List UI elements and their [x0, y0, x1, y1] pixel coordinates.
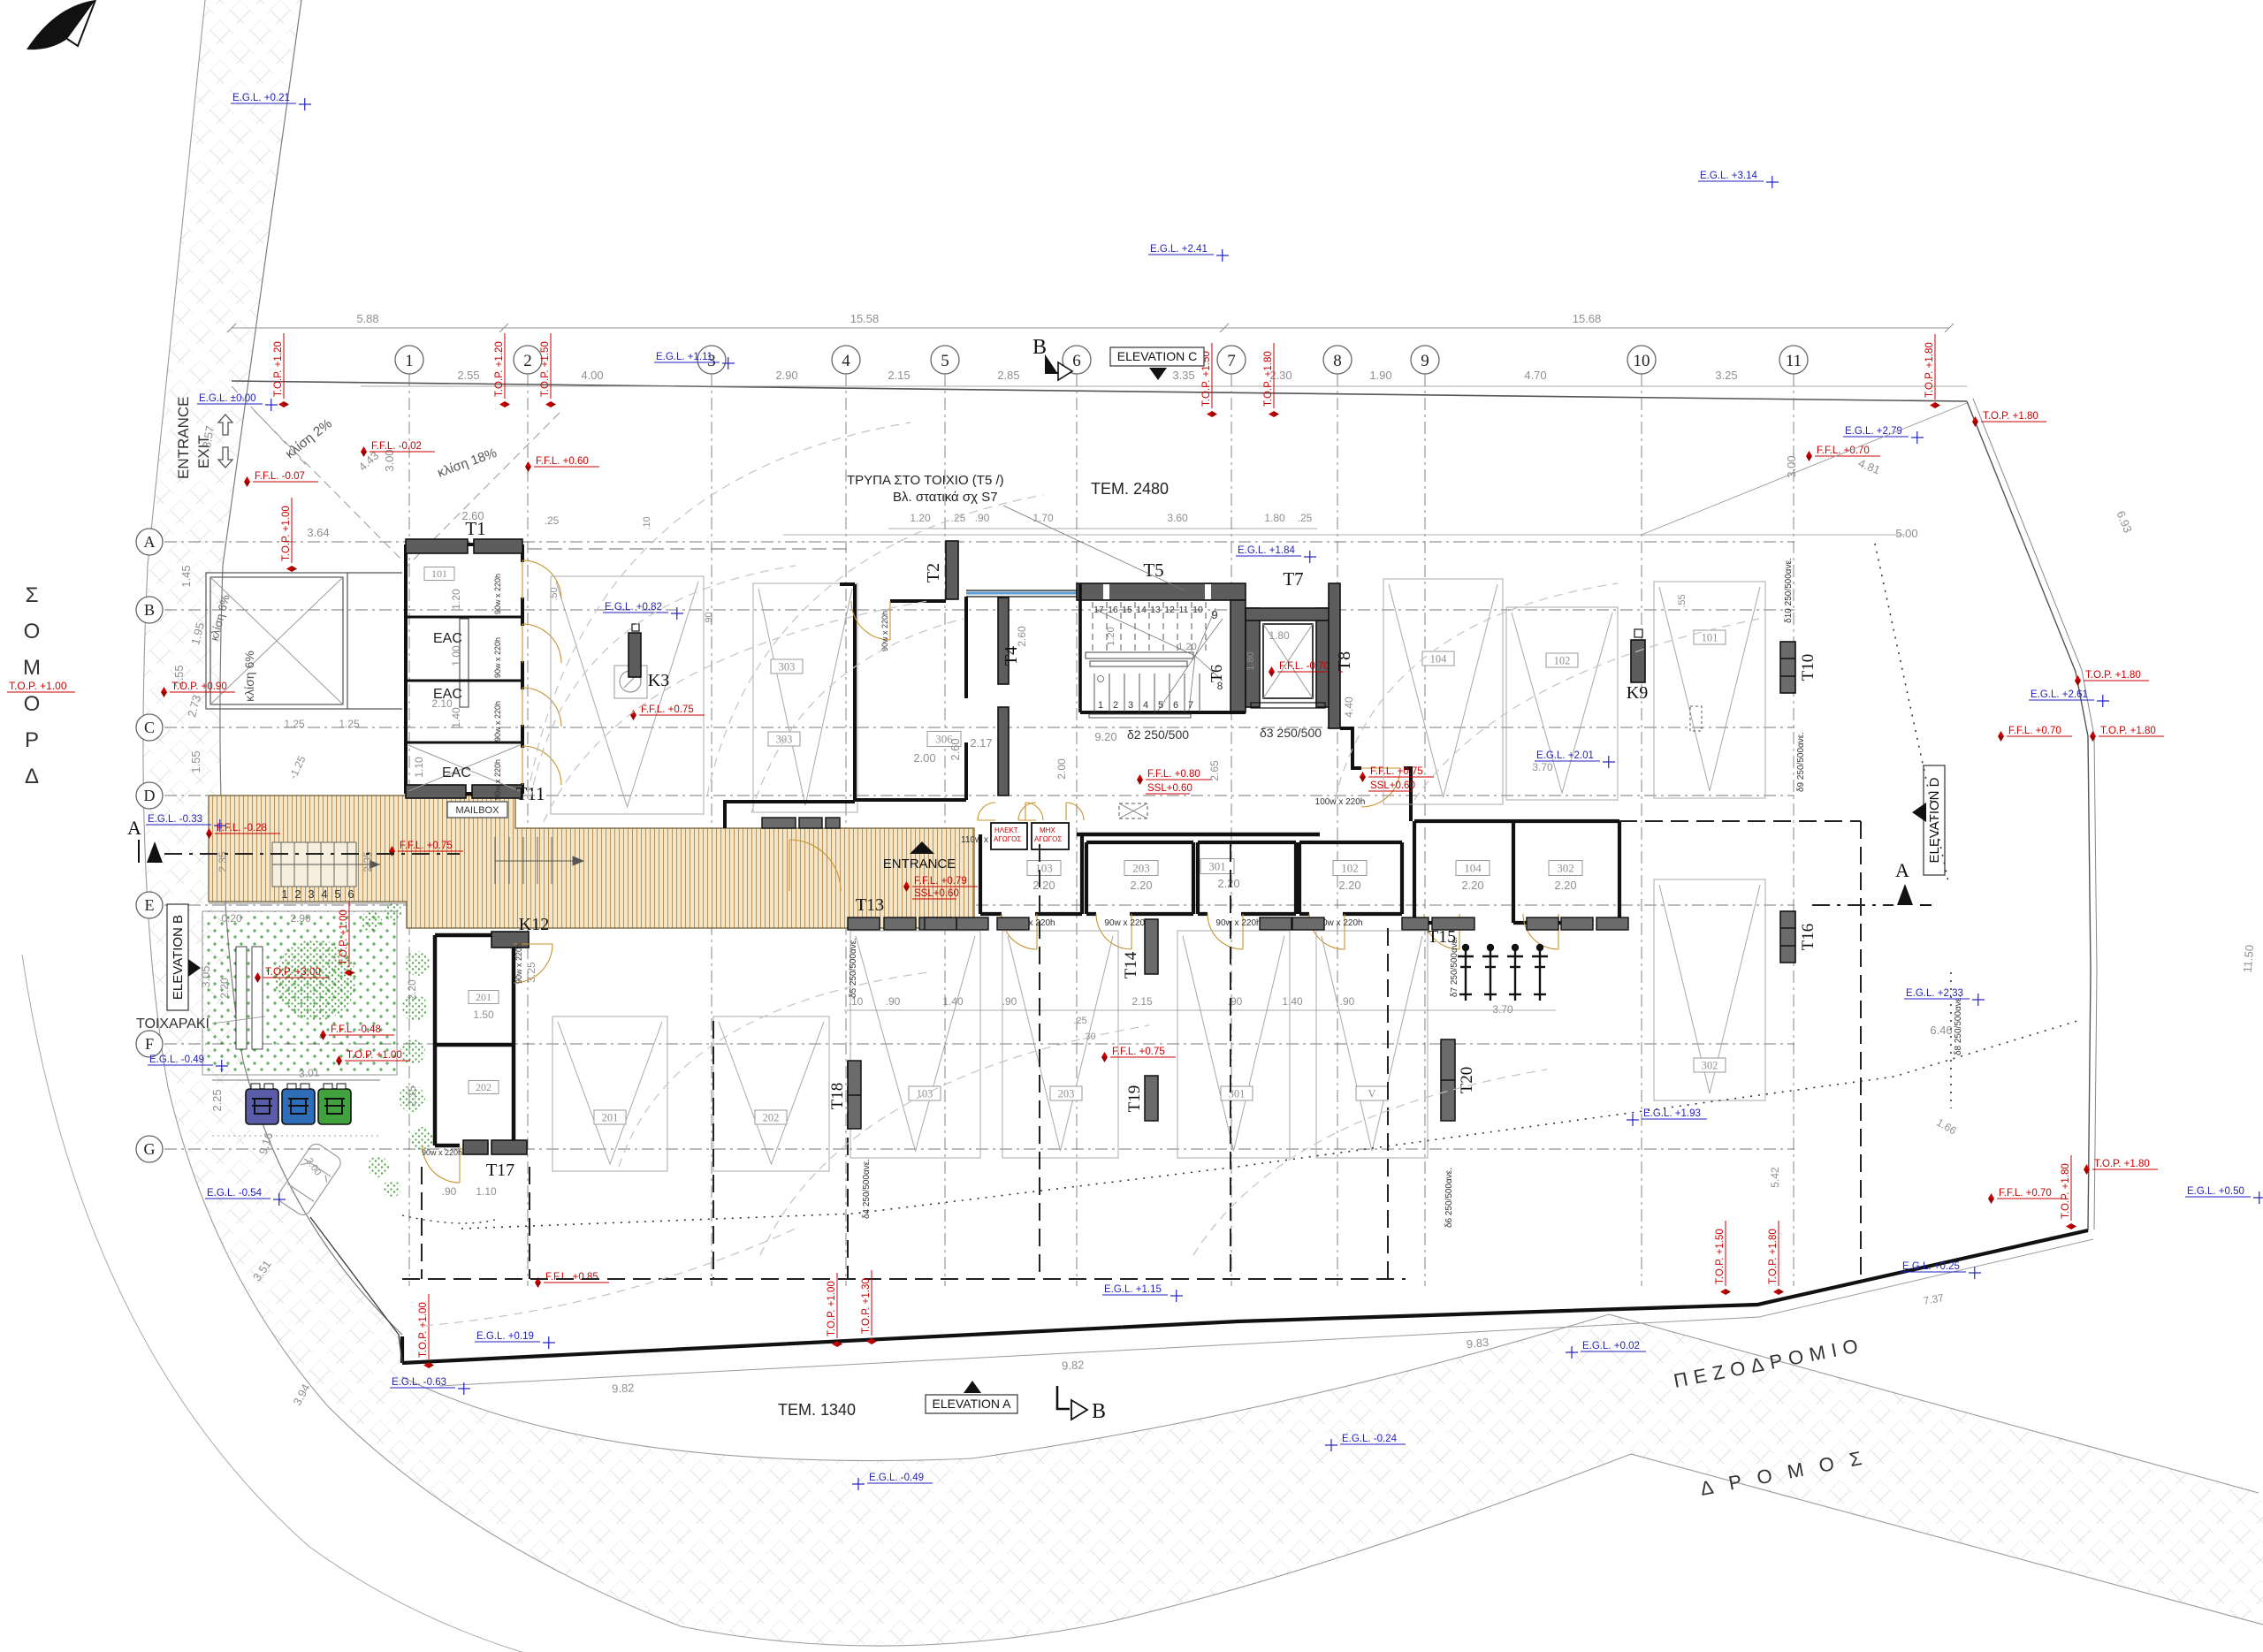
svg-text:Ο: Ο — [24, 692, 41, 716]
svg-text:1.90: 1.90 — [1369, 369, 1391, 382]
svg-text:101: 101 — [1702, 631, 1718, 643]
svg-text:T.O.P. +1.80: T.O.P. +1.80 — [1924, 342, 1935, 398]
svg-text:κλίση 6%: κλίση 6% — [242, 651, 256, 702]
svg-text:1.00: 1.00 — [450, 645, 462, 666]
svg-text:5.42: 5.42 — [1769, 1167, 1781, 1188]
svg-text:T.O.P. +1.80: T.O.P. +1.80 — [1983, 411, 2038, 422]
svg-text:2.15: 2.15 — [888, 369, 910, 382]
svg-text:ΑΓΩΓΟΣ: ΑΓΩΓΟΣ — [1034, 835, 1062, 843]
svg-text:.90: .90 — [704, 612, 714, 625]
svg-text:EAC: EAC — [433, 631, 462, 646]
svg-text:T.O.P. +3.00: T.O.P. +3.00 — [265, 967, 321, 978]
svg-text:2.60: 2.60 — [949, 738, 962, 760]
svg-text:δ8 250/500ανε.: δ8 250/500ανε. — [1954, 995, 1963, 1055]
svg-text:103: 103 — [1035, 861, 1053, 874]
svg-text:Βλ. στατικά σχ S7: Βλ. στατικά σχ S7 — [893, 490, 998, 505]
svg-text:E.G.L. -0.63: E.G.L. -0.63 — [392, 1377, 446, 1388]
svg-text:A: A — [1895, 859, 1909, 881]
svg-text:3.60: 3.60 — [1167, 512, 1188, 524]
svg-text:K3: K3 — [648, 671, 669, 690]
svg-text:E.G.L. +0.19: E.G.L. +0.19 — [476, 1331, 534, 1342]
svg-text:Δ: Δ — [25, 765, 39, 788]
svg-text:.25: .25 — [545, 514, 560, 527]
svg-text:2.20: 2.20 — [406, 979, 418, 1001]
svg-text:1.20: 1.20 — [1177, 642, 1196, 652]
svg-text:T1: T1 — [465, 518, 485, 539]
svg-text:T.O.P. +1.00: T.O.P. +1.00 — [9, 680, 67, 692]
svg-text:1.10: 1.10 — [476, 1185, 497, 1198]
svg-text:90w x 220h: 90w x 220h — [1215, 918, 1261, 928]
svg-text:T.O.P. +1.30: T.O.P. +1.30 — [861, 1278, 872, 1334]
svg-text:102: 102 — [1554, 654, 1571, 666]
svg-text:.25: .25 — [1298, 512, 1313, 524]
svg-text:6.46: 6.46 — [1930, 1024, 1952, 1037]
svg-text:303: 303 — [779, 660, 796, 673]
svg-text:11: 11 — [1179, 605, 1189, 615]
svg-text:1.45: 1.45 — [179, 565, 193, 587]
svg-text:T10: T10 — [1799, 654, 1817, 681]
svg-text:1: 1 — [405, 352, 414, 370]
svg-text:100w x 220h: 100w x 220h — [1315, 797, 1366, 807]
svg-text:2: 2 — [294, 887, 301, 901]
svg-text:ΤΕΜ. 2480: ΤΕΜ. 2480 — [1091, 480, 1169, 498]
svg-text:.50: .50 — [549, 587, 560, 600]
svg-text:T.O.P. +1.80: T.O.P. +1.80 — [2094, 1159, 2150, 1169]
svg-text:T8: T8 — [1335, 651, 1354, 671]
svg-text:ELEVATION D: ELEVATION D — [1927, 777, 1942, 863]
svg-text:E.G.L. +1.93: E.G.L. +1.93 — [1643, 1108, 1701, 1119]
svg-text:.90: .90 — [1002, 995, 1017, 1008]
svg-text:T.O.P. +1.00: T.O.P. +1.00 — [281, 506, 292, 561]
svg-text:5.00: 5.00 — [1895, 527, 1917, 540]
svg-text:2.20: 2.20 — [1461, 879, 1483, 892]
svg-text:1.20: 1.20 — [450, 589, 462, 610]
svg-text:2.20: 2.20 — [218, 978, 231, 999]
svg-text:4.70: 4.70 — [1524, 369, 1546, 382]
svg-text:Σ: Σ — [26, 583, 39, 607]
svg-text:4: 4 — [842, 352, 850, 370]
svg-text:9: 9 — [1211, 608, 1217, 621]
svg-text:δ2 250/500: δ2 250/500 — [1127, 727, 1189, 742]
svg-text:2.90: 2.90 — [290, 912, 311, 925]
svg-text:9.82: 9.82 — [612, 1381, 635, 1395]
svg-text:103: 103 — [917, 1087, 933, 1100]
svg-text:T13: T13 — [856, 895, 884, 915]
svg-text:2.15: 2.15 — [1131, 995, 1153, 1008]
svg-text:3.01: 3.01 — [299, 1066, 321, 1080]
svg-text:1.70: 1.70 — [1032, 512, 1054, 524]
svg-text:15.68: 15.68 — [1573, 312, 1602, 325]
svg-text:202: 202 — [476, 1081, 491, 1093]
svg-text:T19: T19 — [1125, 1085, 1144, 1113]
svg-text:203: 203 — [1058, 1087, 1075, 1100]
svg-text:E.G.L. -0.24: E.G.L. -0.24 — [1342, 1434, 1398, 1444]
svg-text:E.G.L. +2.33: E.G.L. +2.33 — [1906, 988, 1963, 999]
svg-text:2.65: 2.65 — [1208, 760, 1221, 781]
svg-text:4: 4 — [321, 887, 327, 901]
svg-text:F.F.L. +0.75: F.F.L. +0.75 — [1112, 1047, 1165, 1057]
svg-text:90w x 220h: 90w x 220h — [493, 637, 502, 678]
svg-text:ΑΓΩΓΟΣ: ΑΓΩΓΟΣ — [994, 835, 1021, 843]
svg-text:A: A — [127, 817, 141, 839]
svg-text:90w x 220h: 90w x 220h — [880, 611, 889, 651]
svg-text:.10: .10 — [642, 516, 652, 529]
svg-text:E: E — [145, 896, 155, 914]
svg-text:15.58: 15.58 — [850, 312, 880, 325]
svg-text:T11: T11 — [515, 783, 545, 804]
svg-text:δ9 250/500ανε.: δ9 250/500ανε. — [1796, 732, 1806, 792]
svg-text:0.20: 0.20 — [221, 912, 242, 925]
svg-text:T.O.P. +1.00: T.O.P. +1.00 — [418, 1302, 429, 1358]
svg-text:E.G.L. +1.84: E.G.L. +1.84 — [1238, 545, 1295, 556]
svg-text:90w x 220h: 90w x 220h — [514, 943, 523, 984]
svg-text:9: 9 — [1421, 352, 1429, 370]
svg-text:δ5 250/500ανε.: δ5 250/500ανε. — [849, 938, 858, 998]
svg-text:T.O.P. +1.50: T.O.P. +1.50 — [1715, 1229, 1726, 1284]
svg-text:2.25: 2.25 — [210, 1089, 224, 1111]
svg-text:5: 5 — [334, 887, 340, 901]
svg-text:E.G.L. -0.49: E.G.L. -0.49 — [149, 1054, 204, 1065]
svg-text:ΗΛΕΚΤ.: ΗΛΕΚΤ. — [994, 826, 1019, 834]
svg-text:104: 104 — [1464, 861, 1482, 874]
svg-text:EXIT: EXIT — [195, 435, 212, 468]
svg-text:5: 5 — [1158, 700, 1163, 711]
svg-text:E.G.L. -0.54: E.G.L. -0.54 — [207, 1188, 263, 1199]
svg-text:ΤΡΥΠΑ ΣΤΟ ΤΟΙΧΙΟ (Τ5 /): ΤΡΥΠΑ ΣΤΟ ΤΟΙΧΙΟ (Τ5 /) — [847, 473, 1004, 488]
svg-text:T.O.P. +1.80: T.O.P. +1.80 — [2061, 1163, 2071, 1219]
svg-text:.25: .25 — [1073, 1016, 1086, 1026]
svg-text:ΜΗΧ: ΜΗΧ — [1040, 826, 1055, 834]
svg-text:E.G.L. -0.33: E.G.L. -0.33 — [148, 814, 202, 825]
svg-text:2: 2 — [523, 352, 532, 370]
svg-text:12: 12 — [1164, 605, 1175, 615]
svg-text:MAILBOX: MAILBOX — [456, 805, 500, 816]
svg-text:E.G.L. ±0.00: E.G.L. ±0.00 — [199, 393, 256, 404]
svg-text:T.O.P. +1.50: T.O.P. +1.50 — [540, 341, 551, 397]
svg-text:ENTRANCE: ENTRANCE — [883, 856, 956, 872]
svg-text:Ο: Ο — [24, 620, 41, 643]
svg-text:1: 1 — [281, 887, 287, 901]
svg-text:V: V — [1368, 1087, 1375, 1100]
svg-text:1.40: 1.40 — [450, 707, 462, 728]
svg-text:1.80: 1.80 — [1264, 512, 1285, 524]
svg-text:90w x 220h: 90w x 220h — [422, 1148, 462, 1157]
svg-text:3.25: 3.25 — [1715, 369, 1737, 382]
svg-text:ELEVATION B: ELEVATION B — [171, 915, 186, 1000]
svg-text:2.90: 2.90 — [775, 369, 797, 382]
svg-text:F: F — [145, 1035, 154, 1053]
svg-text:3.70: 3.70 — [1492, 1003, 1513, 1016]
svg-text:F.F.L. +0.79: F.F.L. +0.79 — [914, 876, 967, 887]
svg-text:E.G.L. +1.15: E.G.L. +1.15 — [1104, 1284, 1162, 1295]
svg-text:T.O.P. +1.80: T.O.P. +1.80 — [2085, 670, 2141, 681]
svg-text:F.F.L. -0.02: F.F.L. -0.02 — [371, 441, 422, 452]
svg-text:1.25: 1.25 — [284, 718, 305, 730]
svg-text:5.88: 5.88 — [356, 312, 378, 325]
svg-text:1.40: 1.40 — [1282, 995, 1303, 1008]
svg-text:F.F.L. +0.75: F.F.L. +0.75 — [641, 704, 694, 715]
svg-text:11: 11 — [1786, 352, 1802, 370]
svg-text:202: 202 — [763, 1111, 780, 1123]
svg-text:.25: .25 — [951, 512, 966, 524]
svg-text:2.10: 2.10 — [431, 697, 453, 710]
svg-text:102: 102 — [1341, 861, 1359, 874]
svg-text:1.10: 1.10 — [413, 757, 425, 778]
svg-text:10: 10 — [1634, 352, 1650, 370]
svg-text:14: 14 — [1136, 605, 1147, 615]
svg-text:1.55: 1.55 — [189, 750, 202, 773]
svg-text:F.F.L. +0.60: F.F.L. +0.60 — [536, 456, 589, 467]
svg-text:.55: .55 — [1677, 594, 1688, 607]
svg-text:E.G.L. +0.82: E.G.L. +0.82 — [605, 602, 662, 613]
svg-text:F.F.L. -0.28: F.F.L. -0.28 — [217, 823, 267, 834]
svg-text:2.17: 2.17 — [970, 736, 992, 750]
svg-text:ΤΕΜ. 1340: ΤΕΜ. 1340 — [778, 1401, 856, 1419]
svg-text:13: 13 — [1150, 605, 1161, 615]
svg-text:E.G.L. -0.49: E.G.L. -0.49 — [869, 1473, 924, 1483]
svg-text:7: 7 — [1188, 700, 1193, 711]
svg-text:T6: T6 — [1208, 665, 1225, 682]
svg-text:T20: T20 — [1458, 1067, 1476, 1094]
svg-text:10: 10 — [1192, 605, 1203, 615]
svg-text:6: 6 — [1072, 352, 1081, 370]
svg-text:ENTRANCE: ENTRANCE — [175, 396, 192, 479]
svg-text:201: 201 — [602, 1111, 619, 1123]
svg-text:3.25: 3.25 — [525, 962, 537, 983]
svg-text:δ4 250/500ανε.: δ4 250/500ανε. — [862, 1159, 872, 1219]
svg-text:201: 201 — [476, 991, 491, 1003]
svg-text:2.20: 2.20 — [1217, 877, 1239, 890]
svg-text:E.G.L. +0.02: E.G.L. +0.02 — [1582, 1341, 1640, 1351]
svg-text:T.O.P. +1.00: T.O.P. +1.00 — [827, 1281, 837, 1336]
svg-text:F.F.L. +0.70: F.F.L. +0.70 — [1999, 1188, 2052, 1199]
svg-text:T.O.P. +1.80: T.O.P. +1.80 — [1768, 1229, 1779, 1284]
svg-text:F.F.L. +0.70: F.F.L. +0.70 — [1817, 445, 1870, 456]
svg-text:4: 4 — [1143, 700, 1148, 711]
svg-text:B: B — [1092, 1400, 1106, 1423]
svg-text:104: 104 — [1430, 652, 1448, 665]
svg-text:2.20: 2.20 — [1554, 879, 1576, 892]
svg-text:T16: T16 — [1799, 924, 1817, 951]
svg-text:16: 16 — [1108, 605, 1118, 615]
svg-text:90w x 220h: 90w x 220h — [493, 701, 502, 742]
svg-text:3.70: 3.70 — [1532, 761, 1553, 773]
svg-text:E.G.L. +0.21: E.G.L. +0.21 — [232, 93, 290, 103]
svg-text:F.F.L. -0.70: F.F.L. -0.70 — [1279, 661, 1330, 672]
svg-text:9.82: 9.82 — [1062, 1358, 1085, 1372]
svg-text:T.O.P. +1.20: T.O.P. +1.20 — [494, 341, 505, 397]
svg-text:2.55: 2.55 — [457, 369, 479, 382]
svg-text:1.80: 1.80 — [1246, 651, 1256, 670]
svg-text:90w x 220h: 90w x 220h — [493, 574, 502, 614]
svg-text:ELEVATION C: ELEVATION C — [1117, 349, 1198, 363]
svg-text:8: 8 — [1333, 352, 1342, 370]
svg-text:3: 3 — [1128, 700, 1133, 711]
svg-text:δ3 250/500: δ3 250/500 — [1260, 726, 1322, 740]
svg-text:T14: T14 — [1122, 951, 1140, 978]
svg-text:6: 6 — [1173, 700, 1178, 711]
svg-text:1.50: 1.50 — [473, 1009, 494, 1021]
svg-text:C: C — [144, 719, 155, 736]
svg-text:302: 302 — [1702, 1059, 1718, 1071]
svg-text:90w x 220h: 90w x 220h — [1104, 918, 1149, 928]
svg-text:T.O.P. +1.80: T.O.P. +1.80 — [2100, 726, 2156, 736]
svg-text:A: A — [144, 533, 156, 551]
svg-text:K12: K12 — [519, 915, 549, 934]
svg-text:D: D — [144, 787, 156, 804]
svg-text:203: 203 — [1132, 861, 1150, 874]
svg-text:9.83: 9.83 — [1466, 1336, 1490, 1351]
svg-text:1.20: 1.20 — [1106, 627, 1116, 645]
svg-text:2.85: 2.85 — [997, 369, 1019, 382]
svg-text:T.O.P. +1.20: T.O.P. +1.20 — [273, 341, 284, 397]
svg-text:.90: .90 — [886, 995, 901, 1008]
svg-text:SSL+0.60: SSL+0.60 — [1147, 783, 1192, 794]
svg-text:2.60: 2.60 — [1016, 626, 1028, 647]
svg-text:δ10 250/500ανε.: δ10 250/500ανε. — [1784, 558, 1794, 623]
svg-text:9.20: 9.20 — [1094, 730, 1116, 743]
svg-text:Μ: Μ — [23, 656, 41, 680]
svg-text:4.40: 4.40 — [1343, 697, 1355, 718]
svg-text:G: G — [144, 1140, 156, 1158]
svg-text:T18: T18 — [828, 1083, 847, 1110]
svg-text:SSL+0.60: SSL+0.60 — [914, 888, 959, 899]
svg-text:F.F.L. +0.85: F.F.L. +0.85 — [545, 1272, 598, 1283]
svg-text:F.F.L. +0.75: F.F.L. +0.75 — [1370, 766, 1423, 777]
svg-text:1.40: 1.40 — [942, 995, 964, 1008]
svg-text:F.F.L. +0.70: F.F.L. +0.70 — [2008, 726, 2061, 736]
svg-text:1.80: 1.80 — [1269, 629, 1290, 642]
svg-text:E.G.L. +2.61: E.G.L. +2.61 — [2031, 689, 2088, 700]
svg-text:B: B — [144, 601, 155, 619]
svg-text:1.25: 1.25 — [339, 718, 360, 730]
svg-text:F.F.L. +0.80: F.F.L. +0.80 — [1147, 769, 1200, 780]
svg-text:3.00: 3.00 — [1785, 455, 1798, 477]
svg-text:7: 7 — [1227, 352, 1236, 370]
svg-text:T17: T17 — [486, 1161, 514, 1180]
svg-text:E.G.L. +2.79: E.G.L. +2.79 — [1845, 426, 1902, 437]
svg-text:2.20: 2.20 — [1032, 879, 1055, 892]
svg-text:302: 302 — [1557, 861, 1574, 874]
svg-text:3.00: 3.00 — [383, 449, 396, 471]
svg-text:1: 1 — [1098, 700, 1103, 711]
svg-text:301: 301 — [1208, 859, 1226, 872]
svg-text:F.F.L. -0.48: F.F.L. -0.48 — [331, 1024, 381, 1035]
svg-text:E.G.L. +1.11: E.G.L. +1.11 — [656, 352, 712, 362]
svg-text:90w x 220h: 90w x 220h — [493, 759, 502, 800]
svg-text:15: 15 — [1122, 605, 1132, 615]
svg-text:101: 101 — [431, 567, 447, 580]
svg-text:2.00: 2.00 — [913, 751, 935, 765]
svg-text:E.G.L. +3.14: E.G.L. +3.14 — [1700, 171, 1757, 181]
svg-text:T7: T7 — [1283, 568, 1303, 590]
svg-text:T2: T2 — [924, 563, 943, 582]
svg-text:E.G.L. +2.01: E.G.L. +2.01 — [1536, 750, 1594, 761]
svg-text:B: B — [1032, 336, 1047, 359]
svg-text:3: 3 — [308, 887, 314, 901]
svg-text:δ7 250/500ανε.: δ7 250/500ανε. — [1450, 937, 1459, 997]
svg-text:4.00: 4.00 — [581, 369, 603, 382]
svg-text:2: 2 — [1113, 700, 1118, 711]
svg-text:SSL+0.60: SSL+0.60 — [1370, 780, 1415, 791]
svg-text:Ρ: Ρ — [25, 728, 39, 752]
svg-text:E.G.L. +2.41: E.G.L. +2.41 — [1150, 244, 1208, 255]
svg-text:T.O.P. +1.00: T.O.P. +1.00 — [347, 1050, 402, 1061]
svg-text:2.20: 2.20 — [1130, 879, 1152, 892]
svg-text:.90: .90 — [442, 1185, 457, 1198]
svg-text:T.O.P. +0.90: T.O.P. +0.90 — [171, 681, 227, 692]
svg-text:17: 17 — [1093, 605, 1104, 615]
svg-text:K9: K9 — [1627, 683, 1648, 703]
svg-text:3.64: 3.64 — [307, 526, 329, 539]
svg-text:2.00: 2.00 — [1055, 758, 1068, 780]
svg-text:11.50: 11.50 — [2241, 944, 2257, 973]
svg-text:E.G.L. +0.25: E.G.L. +0.25 — [1902, 1261, 1960, 1272]
svg-text:F.F.L. -0.07: F.F.L. -0.07 — [255, 471, 305, 482]
svg-text:.90: .90 — [975, 512, 990, 524]
svg-text:2.15: 2.15 — [406, 1085, 418, 1107]
svg-text:ΤΟΙΧΑΡΑΚΙ: ΤΟΙΧΑΡΑΚΙ — [136, 1016, 210, 1032]
svg-text:.90: .90 — [1340, 995, 1355, 1008]
svg-text:5: 5 — [941, 352, 949, 370]
svg-text:1.20: 1.20 — [910, 512, 931, 524]
svg-text:F.F.L. +0.75: F.F.L. +0.75 — [400, 841, 453, 851]
svg-text:T.O.P. +1.80: T.O.P. +1.80 — [1263, 351, 1274, 407]
svg-text:3.35: 3.35 — [1172, 369, 1194, 382]
svg-text:T.O.P. +1.00: T.O.P. +1.00 — [339, 910, 349, 965]
svg-text:T4: T4 — [1002, 646, 1021, 666]
svg-text:EAC: EAC — [442, 765, 471, 780]
svg-text:2.20: 2.20 — [1338, 879, 1360, 892]
svg-text:6: 6 — [347, 887, 354, 901]
svg-text:δ6 250/500ανε.: δ6 250/500ανε. — [1444, 1168, 1454, 1228]
svg-text:ELEVATION A: ELEVATION A — [933, 1397, 1012, 1411]
svg-text:T5: T5 — [1143, 560, 1163, 581]
svg-text:E.G.L. +0.50: E.G.L. +0.50 — [2187, 1186, 2244, 1197]
